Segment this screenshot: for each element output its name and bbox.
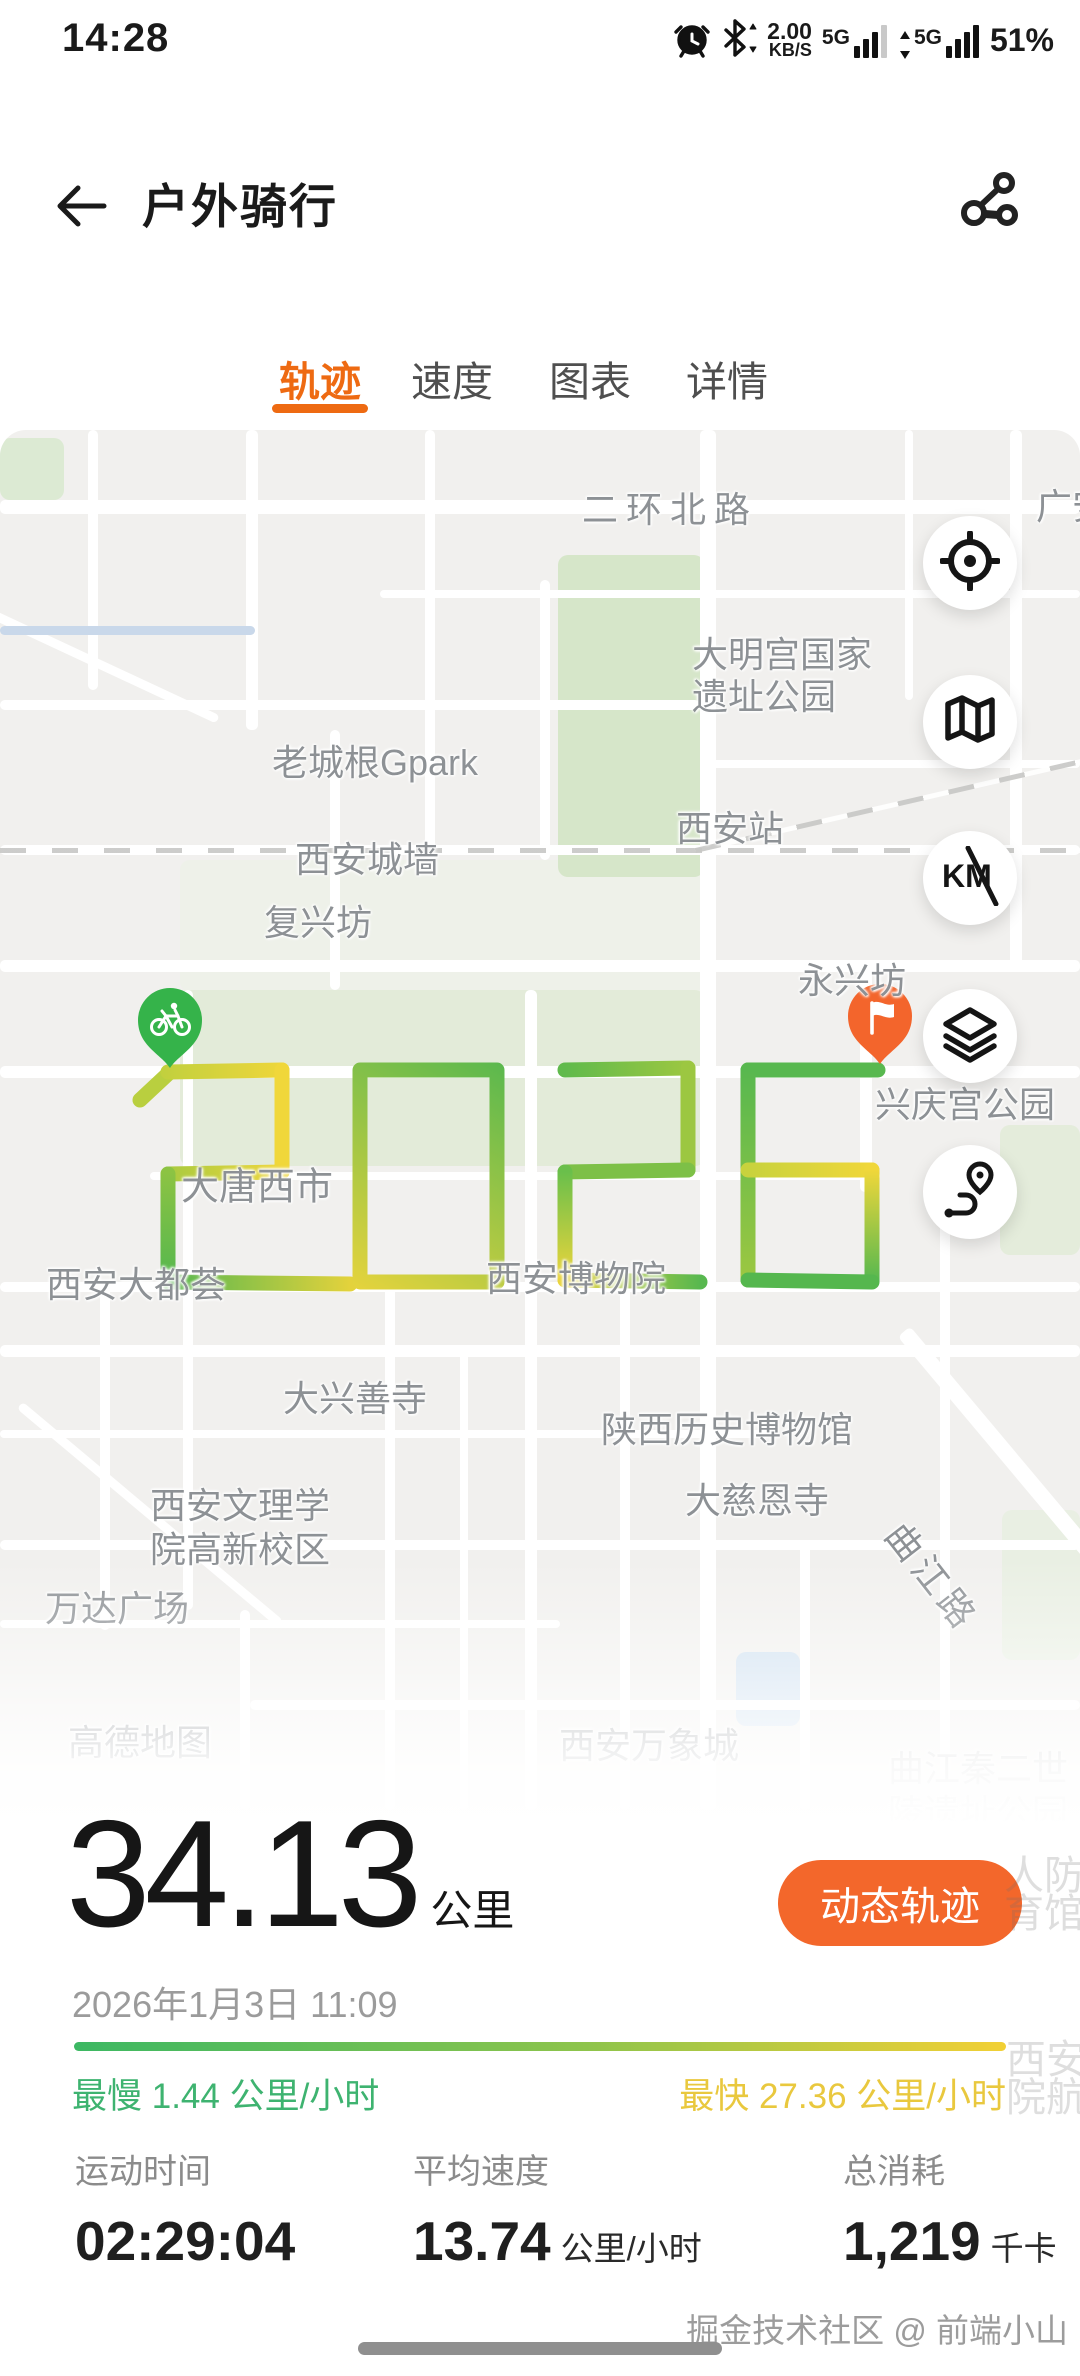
bluetooth-icon [721, 16, 757, 65]
map-label-faint: 育馆 [1004, 1881, 1080, 1939]
battery-percent: 51% [990, 22, 1054, 59]
share-button[interactable] [958, 170, 1022, 234]
map-label-faint: 院航 [1006, 2065, 1080, 2123]
map-road [425, 430, 435, 860]
km-marker-toggle-button[interactable]: KM [923, 831, 1017, 925]
map-road [0, 960, 1080, 972]
map-road [0, 700, 700, 710]
map-label: 大慈恩寺 [685, 1472, 829, 1524]
map-road [905, 430, 913, 700]
map-label: 西安大都荟 [46, 1256, 226, 1308]
map-road [540, 580, 550, 860]
map-road [0, 500, 1080, 514]
metric-label: 总消耗 [843, 2144, 1057, 2193]
map-label: 西安城墙 [295, 831, 439, 883]
map-label: 兴庆宫公园 [875, 1076, 1055, 1128]
layers-button[interactable] [923, 989, 1017, 1083]
metric-label: 平均速度 [413, 2144, 702, 2193]
map-road [0, 626, 255, 635]
status-bar: 14:28 2.00 KB/S 5G [0, 0, 1080, 80]
dynamic-track-button[interactable]: 动态轨迹 [778, 1860, 1022, 1946]
app-screen: 14:28 2.00 KB/S 5G [0, 0, 1080, 2376]
map-label: 广安 [1036, 478, 1080, 530]
km-marker-toggle-icon: KM [940, 846, 1000, 911]
layers-icon [940, 1004, 1000, 1069]
map-green-area [180, 860, 705, 992]
tab-轨迹[interactable]: 轨迹 [279, 348, 361, 408]
back-arrow-icon [52, 221, 112, 238]
metric-unit: 千卡 [991, 2222, 1057, 2270]
metric-unit: 公里/小时 [561, 2222, 702, 2270]
map-label: 陕西历史博物馆 [601, 1401, 853, 1453]
map-label: 西安博物院 [486, 1250, 666, 1302]
home-indicator[interactable] [358, 2342, 722, 2355]
metric-运动时间: 运动时间02:29:04 [75, 2144, 295, 2273]
speed-gradient-bar [74, 2042, 1006, 2051]
map-green-area [180, 990, 705, 1166]
tab-图表[interactable]: 图表 [549, 348, 631, 408]
map-label: 复兴坊 [264, 894, 372, 946]
map-mode-icon [940, 690, 1000, 755]
status-icons: 2.00 KB/S 5G 5G 51% [673, 0, 1054, 80]
distance-value: 34.13 [66, 1798, 416, 1950]
map-mode-button[interactable] [923, 675, 1017, 769]
route-overview-button[interactable] [923, 1145, 1017, 1239]
fastest-speed: 最快 27.36 公里/小时 [679, 2068, 1006, 2119]
metric-平均速度: 平均速度13.74公里/小时 [413, 2144, 702, 2273]
map-label: 大唐西市 [181, 1156, 333, 1211]
metric-value: 13.74 [413, 2209, 551, 2273]
active-tab-underline [272, 404, 368, 413]
map-road [700, 760, 1080, 768]
locate-icon [940, 531, 1000, 596]
page-title: 户外骑行 [142, 168, 338, 237]
map-label: 老城根Gpark [272, 734, 478, 786]
map-label: 西安站 [676, 800, 784, 852]
railway-line [0, 848, 1080, 853]
share-route-icon [958, 221, 1022, 238]
map-label: 大兴善寺 [283, 1370, 427, 1422]
metric-label: 运动时间 [75, 2144, 295, 2193]
map-road [246, 430, 258, 730]
signal-bars-icon: 5G [822, 20, 888, 60]
header: 户外骑行 [0, 150, 1080, 260]
distance-summary: 34.13 公里 [66, 1798, 514, 1950]
route-overview-icon [940, 1160, 1000, 1225]
distance-unit: 公里 [430, 1877, 514, 1950]
map-road [88, 430, 98, 690]
locate-button[interactable] [923, 516, 1017, 610]
map-label: 二环北路 [582, 481, 758, 533]
map-label: 遗址公园 [692, 668, 836, 720]
signal-bars-icon-2: 5G [898, 20, 980, 60]
metric-value: 1,219 [843, 2209, 981, 2273]
metric-value: 02:29:04 [75, 2209, 295, 2273]
tab-速度[interactable]: 速度 [411, 348, 493, 408]
tab-bar: 轨迹速度图表详情 [0, 340, 1080, 430]
network-speed: 2.00 KB/S [767, 21, 812, 60]
map-green-area [0, 438, 64, 500]
ride-datetime: 2026年1月3日 11:09 [72, 1976, 398, 2028]
slowest-speed: 最慢 1.44 公里/小时 [72, 2068, 379, 2119]
alarm-icon [673, 17, 711, 64]
back-button[interactable] [52, 178, 112, 234]
metric-总消耗: 总消耗1,219千卡 [843, 2144, 1057, 2273]
map-label: 永兴坊 [798, 952, 906, 1004]
tab-详情[interactable]: 详情 [686, 348, 768, 408]
watermark-credit: 掘金技术社区 @ 前端小山 [686, 2304, 1068, 2352]
clock-time: 14:28 [62, 16, 169, 61]
